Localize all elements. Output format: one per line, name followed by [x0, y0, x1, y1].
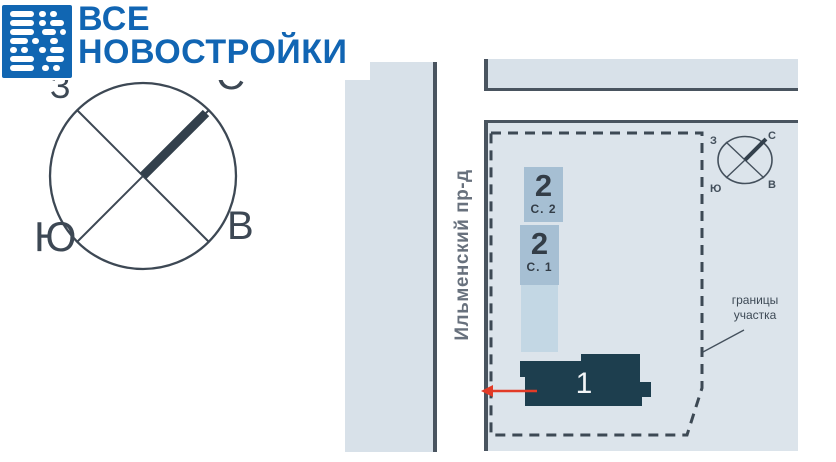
building-1[interactable] — [520, 354, 651, 406]
building-structure-label: С. 2 — [530, 202, 556, 216]
street-edge-line — [433, 62, 437, 452]
brand-line-2: НОВОСТРОЙКИ — [78, 36, 347, 69]
building-footprint-extension[interactable] — [521, 285, 558, 352]
brand-line-1: ВСЕ — [78, 3, 347, 36]
brand-wordmark: ВСЕ НОВОСТРОЙКИ — [78, 3, 347, 70]
north-pointer — [143, 113, 206, 176]
horizontal-street-area — [484, 59, 798, 91]
brand-morse-grid-icon — [2, 5, 72, 78]
site-logo[interactable]: ВСЕ НОВОСТРОЙКИ — [0, 0, 370, 80]
building-number: 2 — [535, 170, 552, 201]
street-name-label: Ильменский пр-д — [452, 155, 476, 355]
compass-east-label: В — [227, 206, 254, 246]
vertical-street-area — [345, 62, 433, 452]
building-structure-label: С. 1 — [526, 260, 552, 274]
building-2-s1[interactable]: 2 С. 1 — [520, 225, 559, 285]
compass-south-label: Ю — [34, 216, 76, 258]
building-2-s2[interactable]: 2 С. 2 — [524, 167, 563, 222]
site-boundary-note: границы участка — [716, 293, 794, 323]
compass-rose-large — [50, 83, 236, 269]
site-plan-screenshot: Ильменский пр-д З Ю В С 2 С. 2 2 С. 1 гр… — [0, 0, 836, 462]
building-number: 2 — [531, 228, 548, 259]
